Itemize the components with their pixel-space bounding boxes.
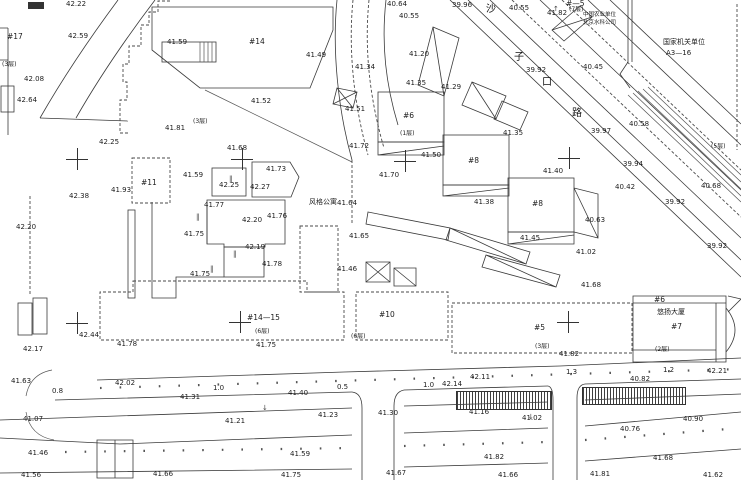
elevation-label: 41.73 xyxy=(266,166,286,173)
elevation-label: 41.93 xyxy=(111,187,131,194)
building-number-label: #14 xyxy=(249,38,265,46)
hatched-wall xyxy=(582,387,686,405)
elevation-label: 40.68 xyxy=(701,183,721,190)
elevation-label: 41.35 xyxy=(503,130,523,137)
building-number-label: #5 xyxy=(534,324,545,332)
building-number-label: #10 xyxy=(379,311,395,319)
survey-grid-cross xyxy=(558,147,580,169)
elevation-label: 41.81 xyxy=(165,125,185,132)
elevation-label: 41.67 xyxy=(386,470,406,477)
symbol-mark: ↓ xyxy=(528,414,534,421)
floor-count-label: (2层) xyxy=(655,347,670,353)
building-number-label: #8 xyxy=(532,200,543,208)
elevation-label: 41.38 xyxy=(474,199,494,206)
road-width-label: 1.3 xyxy=(566,369,577,376)
elevation-label: 41.81 xyxy=(590,471,610,478)
elevation-label: 41.56 xyxy=(21,472,41,479)
elevation-label: 41.78 xyxy=(117,341,137,348)
elevation-label: 42.25 xyxy=(99,139,119,146)
elevation-label: 40.63 xyxy=(585,217,605,224)
elevation-label: 40.76 xyxy=(620,426,640,433)
elevation-label: 41.59 xyxy=(183,172,203,179)
building-number-label: #8 xyxy=(468,157,479,165)
elevation-label: 41.29 xyxy=(441,84,461,91)
elevation-label: 41.31 xyxy=(180,394,200,401)
road-width-label: 1.0 xyxy=(213,385,224,392)
elevation-label: 41.40 xyxy=(288,390,308,397)
elevation-label: 42.22 xyxy=(66,1,86,8)
elevation-label: 41.30 xyxy=(378,410,398,417)
symbol-mark: ‖ xyxy=(229,176,233,183)
building-number-label: #17 xyxy=(7,33,23,41)
symbol-mark: ‖ xyxy=(210,266,214,273)
elevation-label: 42.64 xyxy=(17,97,37,104)
elevation-label: 41.52 xyxy=(251,98,271,105)
elevation-label: 41.76 xyxy=(267,213,287,220)
road-width-label: 1.2 xyxy=(663,367,674,374)
survey-grid-cross xyxy=(557,311,579,333)
elevation-label: 39.96 xyxy=(452,2,472,9)
elevation-label: 42.17 xyxy=(23,346,43,353)
elevation-label: 41.62 xyxy=(703,472,723,479)
floor-count-label: (5层) xyxy=(711,144,726,150)
road-width-label: 0.8 xyxy=(52,388,63,395)
elevation-label: 41.65 xyxy=(349,233,369,240)
building-number-label: #11 xyxy=(141,179,157,187)
building-number-label: #6 xyxy=(403,112,414,120)
elevation-label: 40.64 xyxy=(387,1,407,8)
elevation-label: 42.20 xyxy=(16,224,36,231)
elevation-label: 39.92 xyxy=(707,243,727,250)
building-name-label: A3—16 xyxy=(666,50,691,57)
elevation-label: 41.70 xyxy=(379,172,399,179)
symbol-mark: ‖ xyxy=(233,251,237,258)
street-name-char: 路 xyxy=(572,109,582,119)
floor-count-label: (3层) xyxy=(2,62,17,68)
elevation-label: 41.51 xyxy=(345,106,365,113)
elevation-label: 42.59 xyxy=(68,33,88,40)
survey-grid-cross xyxy=(231,148,253,170)
elevation-label: 41.21 xyxy=(225,418,245,425)
street-name-char: 子 xyxy=(514,53,524,63)
elevation-label: 41.20 xyxy=(409,51,429,58)
elevation-label: 40.55 xyxy=(399,13,419,20)
elevation-label: 41.59 xyxy=(290,451,310,458)
elevation-label: 42.38 xyxy=(69,193,89,200)
elevation-label: 41.40 xyxy=(543,168,563,175)
elevation-label: 39.92 xyxy=(665,199,685,206)
elevation-label: 41.07 xyxy=(23,416,43,423)
elevation-label: 41.64 xyxy=(337,200,357,207)
elevation-label: 41.45 xyxy=(520,235,540,242)
elevation-label: 41.63 xyxy=(11,378,31,385)
elevation-label: 41.16 xyxy=(469,409,489,416)
elevation-label: 42.11 xyxy=(470,374,490,381)
elevation-label: 40.58 xyxy=(629,121,649,128)
elevation-label: 40.45 xyxy=(583,64,603,71)
symbol-mark: ↓ xyxy=(262,405,268,412)
survey-grid-cross xyxy=(229,311,251,333)
elevation-label: 41.75 xyxy=(190,271,210,278)
elevation-label: 42.02 xyxy=(115,380,135,387)
elevation-label: 42.20 xyxy=(242,217,262,224)
elevation-label: 41.66 xyxy=(153,471,173,478)
elevation-label: 41.59 xyxy=(167,39,187,46)
building-number-label: #6 xyxy=(654,296,665,304)
elevation-label: 41.78 xyxy=(262,261,282,268)
elevation-label: 41.66 xyxy=(498,472,518,479)
elevation-label: 42.21 xyxy=(707,368,727,375)
elevation-label: 41.49 xyxy=(306,52,326,59)
elevation-label: 40.42 xyxy=(615,184,635,191)
building-name-label: 国家机关单位 xyxy=(663,39,705,46)
floor-count-label: (6层) xyxy=(255,329,270,335)
road-width-label: 0.5 xyxy=(337,384,348,391)
survey-grid-cross xyxy=(66,312,88,334)
floor-count-label: (7层) xyxy=(569,7,584,13)
building-name-label: 北京水科公司 xyxy=(583,21,616,27)
elevation-label: 42.08 xyxy=(24,76,44,83)
survey-grid-cross xyxy=(394,150,416,172)
building-number-label: #14—15 xyxy=(247,314,280,322)
survey-grid-cross xyxy=(66,148,88,170)
elevation-label: 41.23 xyxy=(318,412,338,419)
floor-count-label: (3层) xyxy=(535,344,550,350)
elevation-label: 41.75 xyxy=(281,472,301,479)
street-name-char: 沙 xyxy=(486,5,496,15)
street-name-char: 口 xyxy=(542,78,552,88)
road-width-label: 1.0 xyxy=(423,382,434,389)
elevation-label: 42.27 xyxy=(250,184,270,191)
building-name-label: 风格公寓 xyxy=(309,199,337,206)
building-name-label: 悠扬大厦 xyxy=(657,309,685,316)
elevation-label: 41.72 xyxy=(349,143,369,150)
floor-count-label: (1层) xyxy=(400,131,415,137)
building-name-label: 中国农业单位 xyxy=(583,13,616,19)
elevation-label: 42.25 xyxy=(219,182,239,189)
elevation-label: 41.50 xyxy=(421,152,441,159)
elevation-label: 42.14 xyxy=(442,381,462,388)
elevation-label: 39.97 xyxy=(591,128,611,135)
elevation-label: 39.94 xyxy=(623,161,643,168)
elevation-label: 41.46 xyxy=(337,266,357,273)
elevation-label: 40.90 xyxy=(683,416,703,423)
map-linework xyxy=(0,0,741,480)
elevation-label: 41.82 xyxy=(484,454,504,461)
floor-count-label: (3层) xyxy=(193,119,208,125)
symbol-mark: ‖ xyxy=(196,214,200,221)
symbol-mark: ↑ xyxy=(553,6,559,13)
building-number-label: #7 xyxy=(671,323,682,331)
elevation-label: 42.19 xyxy=(245,244,265,251)
floor-count-label: (6层) xyxy=(351,334,366,340)
elevation-label: 40.82 xyxy=(630,376,650,383)
elevation-label: 41.82 xyxy=(559,351,579,358)
elevation-label: 41.02 xyxy=(576,249,596,256)
elevation-label: 41.75 xyxy=(256,342,276,349)
elevation-label: 39.92 xyxy=(526,67,546,74)
elevation-label: 41.77 xyxy=(204,202,224,209)
elevation-label: 41.68 xyxy=(581,282,601,289)
hatched-wall xyxy=(456,391,552,410)
elevation-label: 41.75 xyxy=(184,231,204,238)
elevation-label: 41.68 xyxy=(653,455,673,462)
elevation-label: 41.34 xyxy=(355,64,375,71)
elevation-label: 41.46 xyxy=(28,450,48,457)
elevation-label: 40.55 xyxy=(509,5,529,12)
survey-map-canvas: 42.2242.5942.0842.6442.2541.5941.8141.68… xyxy=(0,0,741,480)
elevation-label: 41.35 xyxy=(406,80,426,87)
